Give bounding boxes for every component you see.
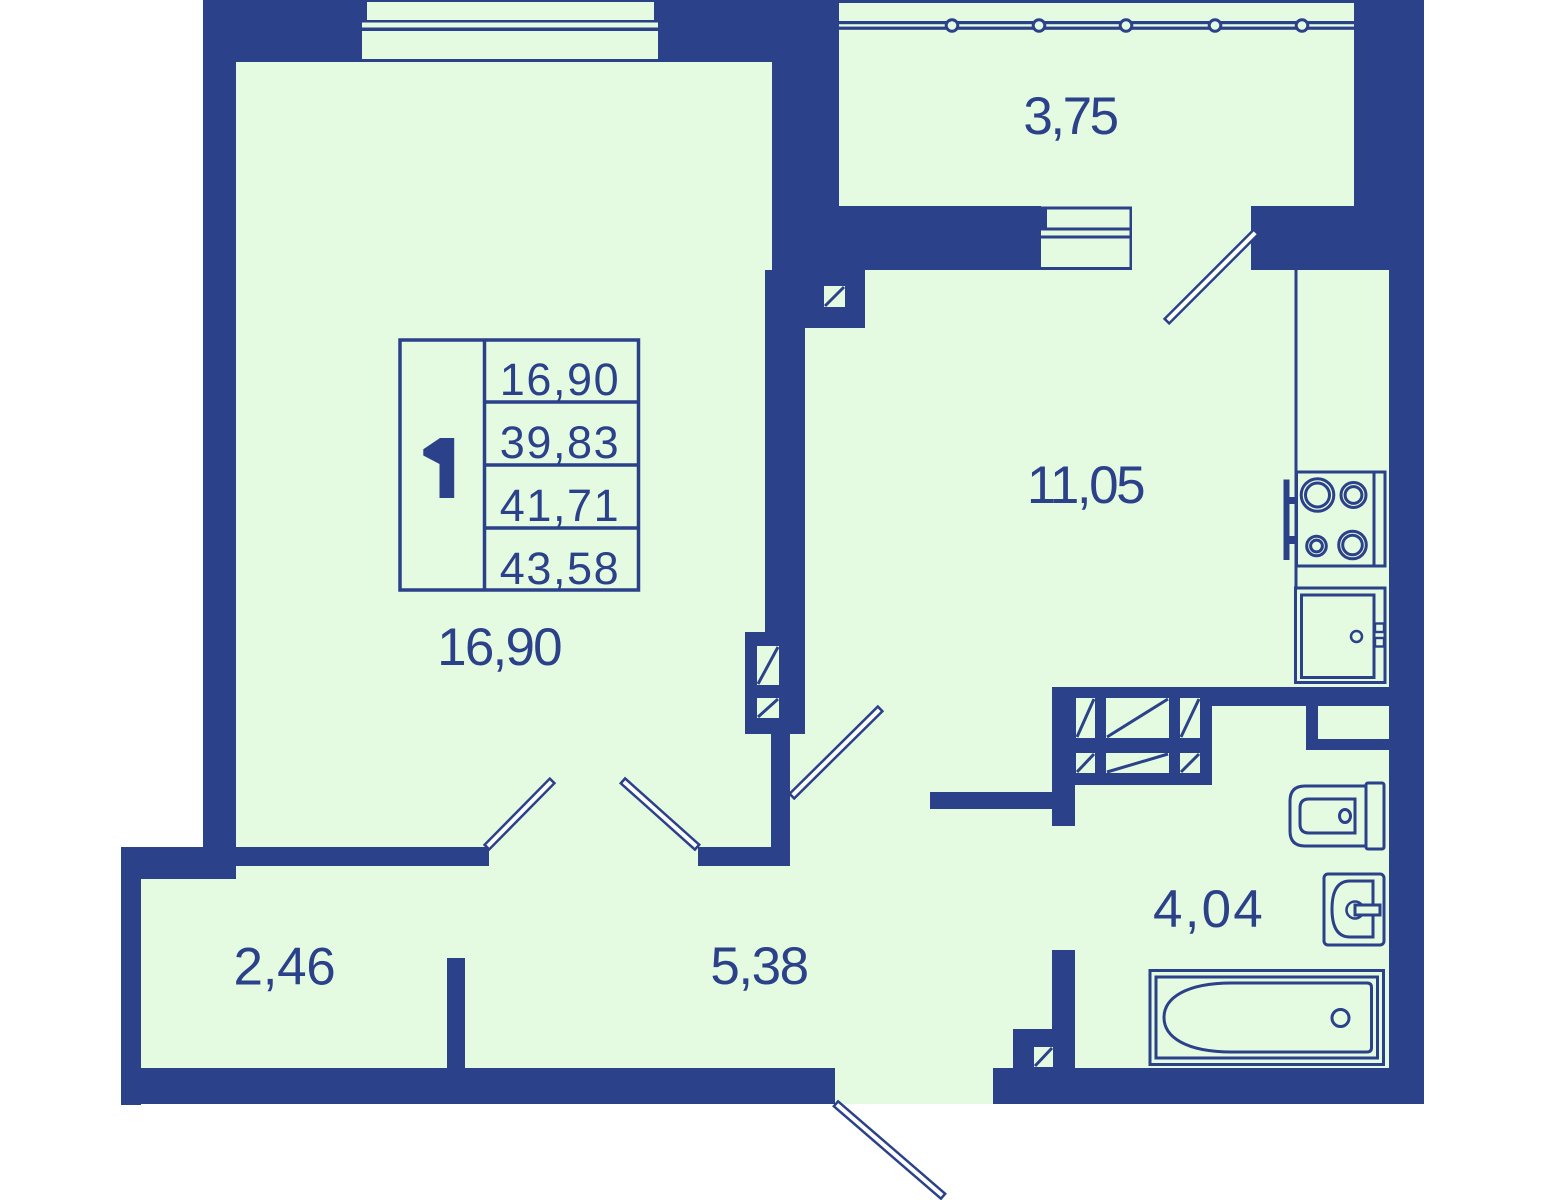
svg-text:11,05: 11,05 [1027, 456, 1144, 515]
svg-text:3,75: 3,75 [1023, 87, 1117, 146]
svg-text:43,58: 43,58 [500, 543, 621, 594]
svg-text:4,04: 4,04 [1153, 880, 1265, 939]
svg-text:2,46: 2,46 [234, 938, 336, 997]
svg-text:16,90: 16,90 [500, 354, 621, 405]
svg-text:16,90: 16,90 [437, 618, 561, 677]
svg-text:41,71: 41,71 [500, 480, 621, 531]
svg-text:39,83: 39,83 [500, 417, 621, 468]
svg-text:5,38: 5,38 [710, 937, 807, 996]
